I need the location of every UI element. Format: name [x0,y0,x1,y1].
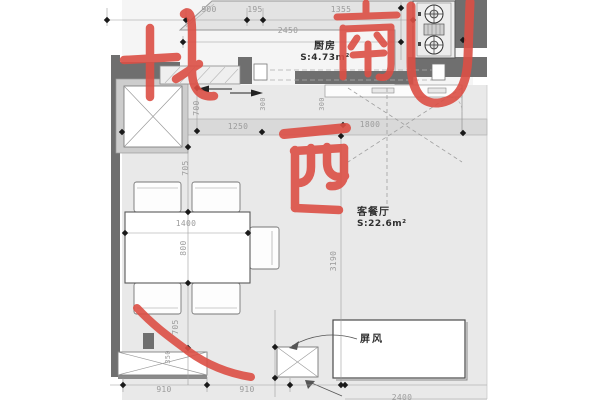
floor-plan-canvas: 900 195 1355 2450 700 300 300 1250 1800 … [0,0,600,400]
dim-705-lower: 705 [171,310,181,344]
dim-1355: 1355 [319,5,363,15]
living-dining-area: S:22.6m² [357,219,407,230]
dim-1400: 1400 [164,219,208,229]
crossed-cabinet-top [116,79,188,153]
screen-symbol [277,347,318,377]
dim-350: 350 [163,340,173,374]
living-dining-name: 客餐厅 [357,207,407,219]
dim-2450: 2450 [266,26,310,36]
dim-800: 800 [179,231,189,265]
dim-3190: 3190 [329,244,339,278]
coffee-table [333,320,467,380]
screen-callout: 屏风 [360,330,384,345]
dim-705-upper: 705 [181,151,191,185]
dim-700: 700 [192,91,202,125]
dim-300-a: 300 [258,87,268,121]
dim-195: 195 [233,5,277,15]
kitchen-area: S:4.73m² [290,53,360,64]
gas-stove [413,1,455,58]
kitchen-name: 厨房 [290,41,360,53]
living-dining-label: 客餐厅 S:22.6m² [357,207,407,230]
kitchen-label: 厨房 S:4.73m² [290,41,360,64]
dim-910-b: 910 [225,385,269,395]
dim-910-a: 910 [142,385,186,395]
dim-300-b: 300 [317,87,327,121]
dim-900: 900 [187,5,231,15]
dim-1250: 1250 [216,122,260,132]
dim-2400: 2400 [380,393,424,400]
dim-1800: 1800 [348,120,392,130]
